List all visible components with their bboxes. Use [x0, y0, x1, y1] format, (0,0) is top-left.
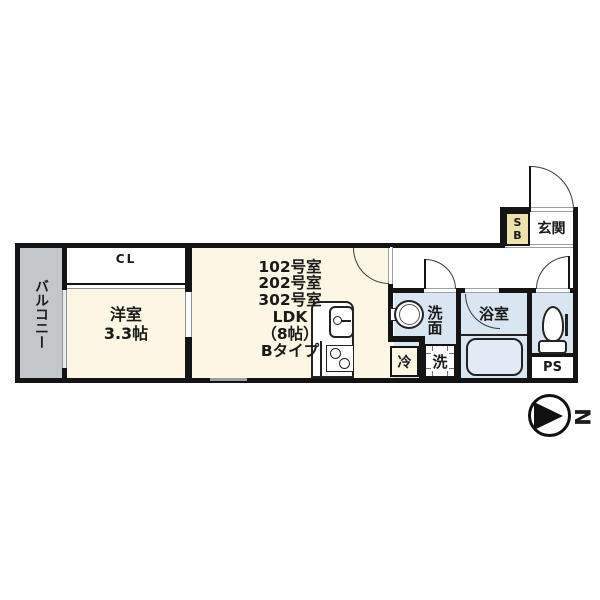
entrance-door-arc	[531, 166, 574, 210]
wall-left-outer	[15, 243, 20, 383]
western-room-label: 洋室 3.3帖	[67, 303, 185, 345]
wall-top-main	[15, 243, 505, 248]
balcony-label: バルコニー	[29, 252, 53, 376]
closet-label: CL	[67, 251, 185, 267]
refrigerator-label: 冷	[390, 346, 419, 377]
ldk-label: 102号室 202号室 302号室 LDK （8帖） Bタイプ	[190, 258, 390, 360]
ldk-door-leaf	[353, 246, 390, 248]
toilet-bowl-icon	[542, 306, 564, 342]
shoe-box-label: SB	[505, 213, 530, 245]
doorway-bathroom	[465, 288, 499, 293]
toilet-door-leaf	[568, 256, 570, 289]
washroom-door-leaf	[424, 259, 426, 289]
washroom-label: 洗面	[426, 300, 444, 340]
toilet-tank-icon	[538, 340, 567, 354]
wall-right-outer	[573, 207, 578, 383]
wall-bottom-outer	[15, 378, 578, 383]
floor-plan: 冷 洗 SB バルコニー CL 洋室 3.3帖 102号室 202号室 302号…	[0, 0, 600, 600]
entrance-label: 玄関	[530, 217, 573, 239]
bathtub-step-line	[461, 334, 527, 336]
toilet-paper-bar	[565, 314, 568, 336]
closet-sliding-door	[67, 283, 185, 289]
window-ldk-bottom	[210, 378, 247, 381]
compass-north-label: N	[570, 405, 594, 429]
bathtub	[466, 338, 523, 376]
washer-label: 洗	[431, 351, 449, 371]
entrance-door-leaf	[529, 166, 531, 210]
washbasin-inner	[399, 304, 420, 325]
bathroom-label: 浴室	[461, 304, 527, 322]
pipe-space-label: PS	[532, 359, 573, 376]
